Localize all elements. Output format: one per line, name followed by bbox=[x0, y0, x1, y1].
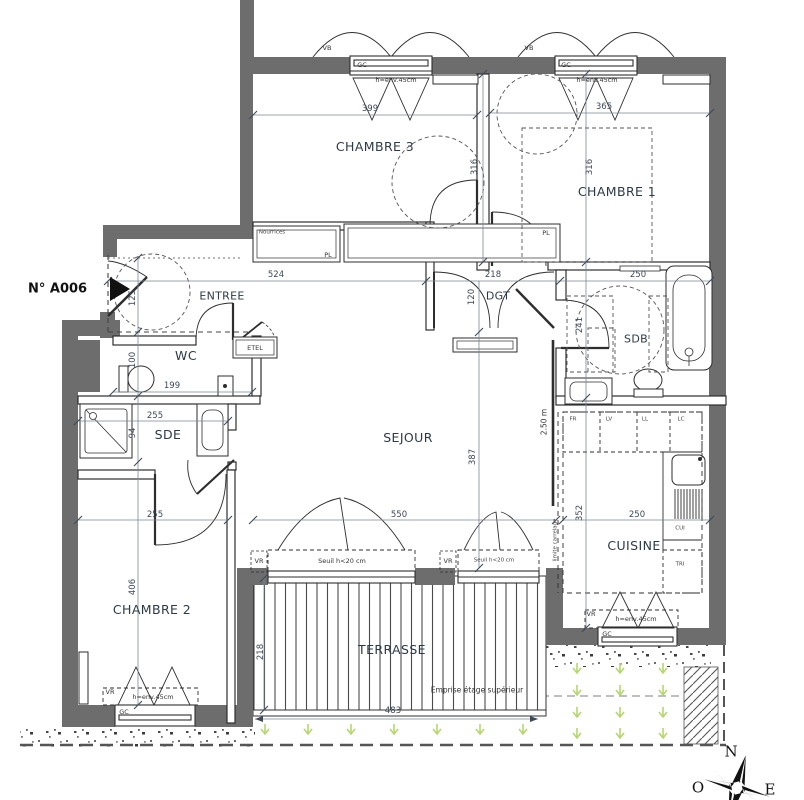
kitchen-lv-label: LV bbox=[606, 417, 612, 423]
dim-chambre3-depth: 316 bbox=[471, 159, 480, 175]
window-height-3: h=env.45cm bbox=[615, 616, 656, 623]
room-label-entree: ENTREE bbox=[199, 291, 244, 302]
dim-hall-length: 524 bbox=[268, 271, 284, 280]
dim-dgt-depth: 120 bbox=[468, 289, 477, 305]
room-label-chambre1: CHAMBRE 1 bbox=[578, 186, 656, 199]
window-type-vb-1: VB bbox=[323, 45, 332, 52]
kitchen-ll-label: LL bbox=[642, 417, 648, 423]
upper-floor-note: Emprise étage supérieur bbox=[431, 686, 523, 694]
kitchen-fr-label: FR bbox=[570, 417, 577, 423]
dim-wc-depth: 100 bbox=[129, 352, 138, 368]
window-gc-2: GC bbox=[561, 62, 571, 69]
closet-pl-2: PL bbox=[542, 230, 550, 237]
kitchen-cui-label: CUI bbox=[675, 526, 685, 532]
dim-sde-depth: 94 bbox=[129, 428, 138, 439]
compass-rose-icon bbox=[704, 755, 770, 800]
closet-nourrices-label: Nourrices bbox=[259, 230, 285, 236]
dim-cuisine-width: 250 bbox=[629, 511, 645, 520]
kitchen-lc-label: LC bbox=[678, 417, 685, 423]
dim-terrasse-width: 483 bbox=[385, 707, 401, 716]
dim-dgt-width: 218 bbox=[485, 271, 501, 280]
kitchen-tri-label: TRI bbox=[676, 562, 685, 568]
window-type-vb-2: VB bbox=[525, 45, 534, 52]
window-vr-1: VR bbox=[255, 558, 264, 565]
floor-plan: N° A006 CHAMBRE 3 CHAMBRE 1 ENTREE DGT W… bbox=[0, 0, 804, 800]
compass-west-label: O bbox=[692, 781, 704, 796]
dim-chambre1-depth: 316 bbox=[586, 159, 595, 175]
room-label-wc: WC bbox=[175, 350, 197, 363]
room-label-sdb: SDB bbox=[624, 334, 648, 345]
window-vr-3: VR bbox=[587, 611, 596, 618]
dim-wc-width: 199 bbox=[164, 382, 180, 391]
dim-chambre2-depth: 406 bbox=[129, 579, 138, 595]
floor-plan-drawing bbox=[0, 0, 804, 800]
dim-chambre1-width: 365 bbox=[596, 103, 612, 112]
dim-sejour-width: 550 bbox=[391, 511, 407, 520]
dim-sdb-depth: 241 bbox=[576, 317, 585, 333]
compass-east-label: E bbox=[765, 783, 776, 798]
seuil-note-2: Seuil h<20 cm bbox=[474, 558, 514, 564]
room-label-sejour: SEJOUR bbox=[383, 432, 433, 445]
window-gc-1: GC bbox=[357, 62, 367, 69]
closet-etel-label: ETEL bbox=[247, 345, 263, 352]
closet-pl-1: PL bbox=[324, 252, 332, 259]
dim-chambre2-width: 255 bbox=[147, 511, 163, 520]
dim-chambre3-width: 399 bbox=[362, 105, 378, 114]
dim-cuisine-depth: 352 bbox=[576, 505, 585, 521]
room-label-terrasse: TERRASSE bbox=[358, 644, 426, 657]
window-height-4: h=env.45cm bbox=[132, 694, 173, 701]
seuil-note-1: Seuil h<20 cm bbox=[318, 558, 366, 565]
dim-terrasse-depth: 218 bbox=[257, 644, 266, 660]
dim-sde-width: 255 bbox=[147, 412, 163, 421]
room-label-cuisine: CUISINE bbox=[607, 540, 660, 553]
room-label-chambre2: CHAMBRE 2 bbox=[113, 604, 191, 617]
tile-limit-note: limite carrelage bbox=[553, 518, 559, 561]
dim-sdb-width: 250 bbox=[630, 271, 646, 280]
ceiling-height-note: 2.50 m bbox=[540, 409, 548, 435]
window-gc-3: GC bbox=[602, 631, 612, 638]
room-label-chambre3: CHAMBRE 3 bbox=[336, 141, 414, 154]
room-label-dgt: DGT bbox=[486, 291, 510, 302]
unit-marker-label: N° A006 bbox=[28, 283, 87, 296]
dim-entry-width: 125 bbox=[129, 290, 138, 306]
window-vr-4: VR bbox=[106, 689, 115, 696]
compass-north-label: N bbox=[724, 745, 737, 760]
window-gc-4: GC bbox=[119, 709, 129, 716]
window-height-1: h=env.45cm bbox=[375, 77, 416, 84]
window-height-2: h=env.45cm bbox=[576, 77, 617, 84]
dim-sejour-depth: 387 bbox=[469, 449, 478, 465]
room-label-sde: SDE bbox=[155, 429, 182, 442]
window-vr-2: VR bbox=[444, 558, 453, 565]
